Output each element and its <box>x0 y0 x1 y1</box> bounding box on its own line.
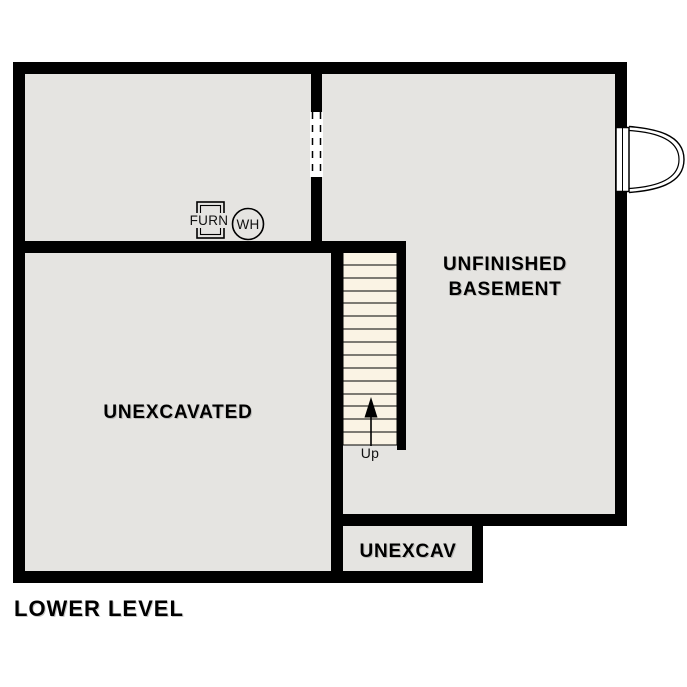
wall-bottom-left <box>13 571 483 583</box>
wall-divider-upper <box>311 62 322 112</box>
wall-stair-left <box>331 241 343 571</box>
unexcavated-room-label: UNEXCAVATED <box>68 400 288 425</box>
furnace-label: FURN <box>189 213 229 228</box>
wall-unexcav-right <box>472 514 483 583</box>
basement-room-label: UNFINISHEDBASEMENT <box>395 252 615 302</box>
wall-left <box>13 62 25 583</box>
floor-plan: UNFINISHEDBASEMENT UNEXCAVATED UNEXCAV F… <box>0 0 687 687</box>
basement-label-line2: BASEMENT <box>448 279 561 300</box>
wall-divider-lower <box>311 177 322 253</box>
bulkhead-outer-icon <box>629 127 684 193</box>
unexcav-small-room-label: UNEXCAV <box>349 539 467 564</box>
doorway-opening-dashed <box>310 112 323 177</box>
exterior-door <box>616 127 684 193</box>
basement-label-line1: UNFINISHED <box>443 254 567 275</box>
stairs-direction-label: Up <box>350 446 390 461</box>
page-title: LOWER LEVEL <box>14 596 184 622</box>
wall-interior-horizontal <box>13 241 406 253</box>
water-heater-label: WH <box>233 217 263 232</box>
floor-plan-drawing <box>0 0 687 687</box>
utility-room-floor <box>25 74 311 241</box>
